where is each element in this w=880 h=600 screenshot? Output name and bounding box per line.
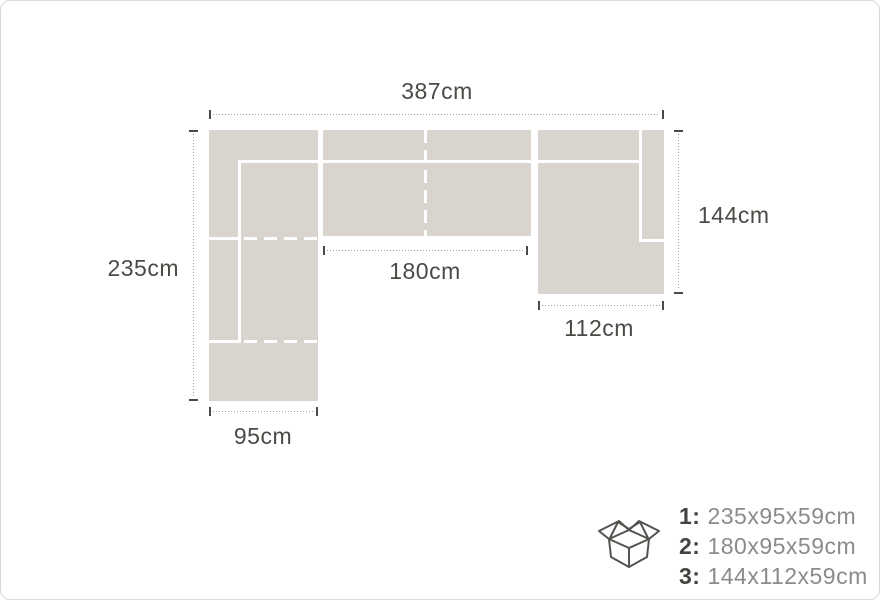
left-depth-label: 235cm [89, 255, 179, 282]
right-section-armrest-seam-bottom [639, 239, 664, 242]
package-size: 144x112x59cm [707, 563, 867, 589]
sofa-section-right-chaise [538, 130, 664, 294]
right-depth-label: 144cm [698, 202, 770, 229]
package-number: 2: [679, 533, 700, 559]
left-section-module-seam-lower [209, 340, 239, 343]
package-size: 235x95x59cm [707, 503, 856, 529]
sofa-dimension-diagram: 387cm 235cm 144cm 180cm 112cm 95cm 1:235… [0, 0, 880, 600]
dimension-line-left-width [209, 407, 318, 416]
left-section-fold-line-upper [244, 237, 318, 240]
package-number: 1: [679, 503, 700, 529]
package-dimensions-legend: 1:235x95x59cm 2:180x95x59cm 3:144x112x59… [679, 501, 868, 591]
open-box-icon [597, 514, 661, 570]
left-section-module-seam [209, 237, 239, 240]
right-section-backrest-seam [538, 160, 642, 163]
dimension-line-left-depth [189, 130, 198, 401]
dimension-line-middle-width [323, 246, 528, 255]
right-section-armrest-seam-vertical [639, 130, 642, 242]
left-section-fold-line-lower [244, 340, 318, 343]
sofa-section-left-chaise [209, 130, 318, 401]
middle-section-fold-line [424, 130, 427, 236]
package-number: 3: [679, 563, 700, 589]
middle-section-backrest-seam [323, 160, 531, 163]
dimension-line-right-width [538, 301, 664, 310]
left-section-armrest-seam-vertical [238, 160, 241, 343]
package-row: 1:235x95x59cm [679, 501, 868, 531]
sofa-section-middle [323, 130, 531, 236]
package-row: 3:144x112x59cm [679, 561, 868, 591]
dimension-line-overall-width [209, 110, 664, 119]
overall-width-label: 387cm [401, 78, 473, 105]
left-section-backrest-seam [238, 160, 318, 163]
left-width-label: 95cm [234, 423, 292, 450]
dimension-line-right-depth [674, 130, 683, 294]
right-width-label: 112cm [564, 315, 634, 342]
middle-width-label: 180cm [389, 258, 461, 285]
package-row: 2:180x95x59cm [679, 531, 868, 561]
package-size: 180x95x59cm [707, 533, 856, 559]
